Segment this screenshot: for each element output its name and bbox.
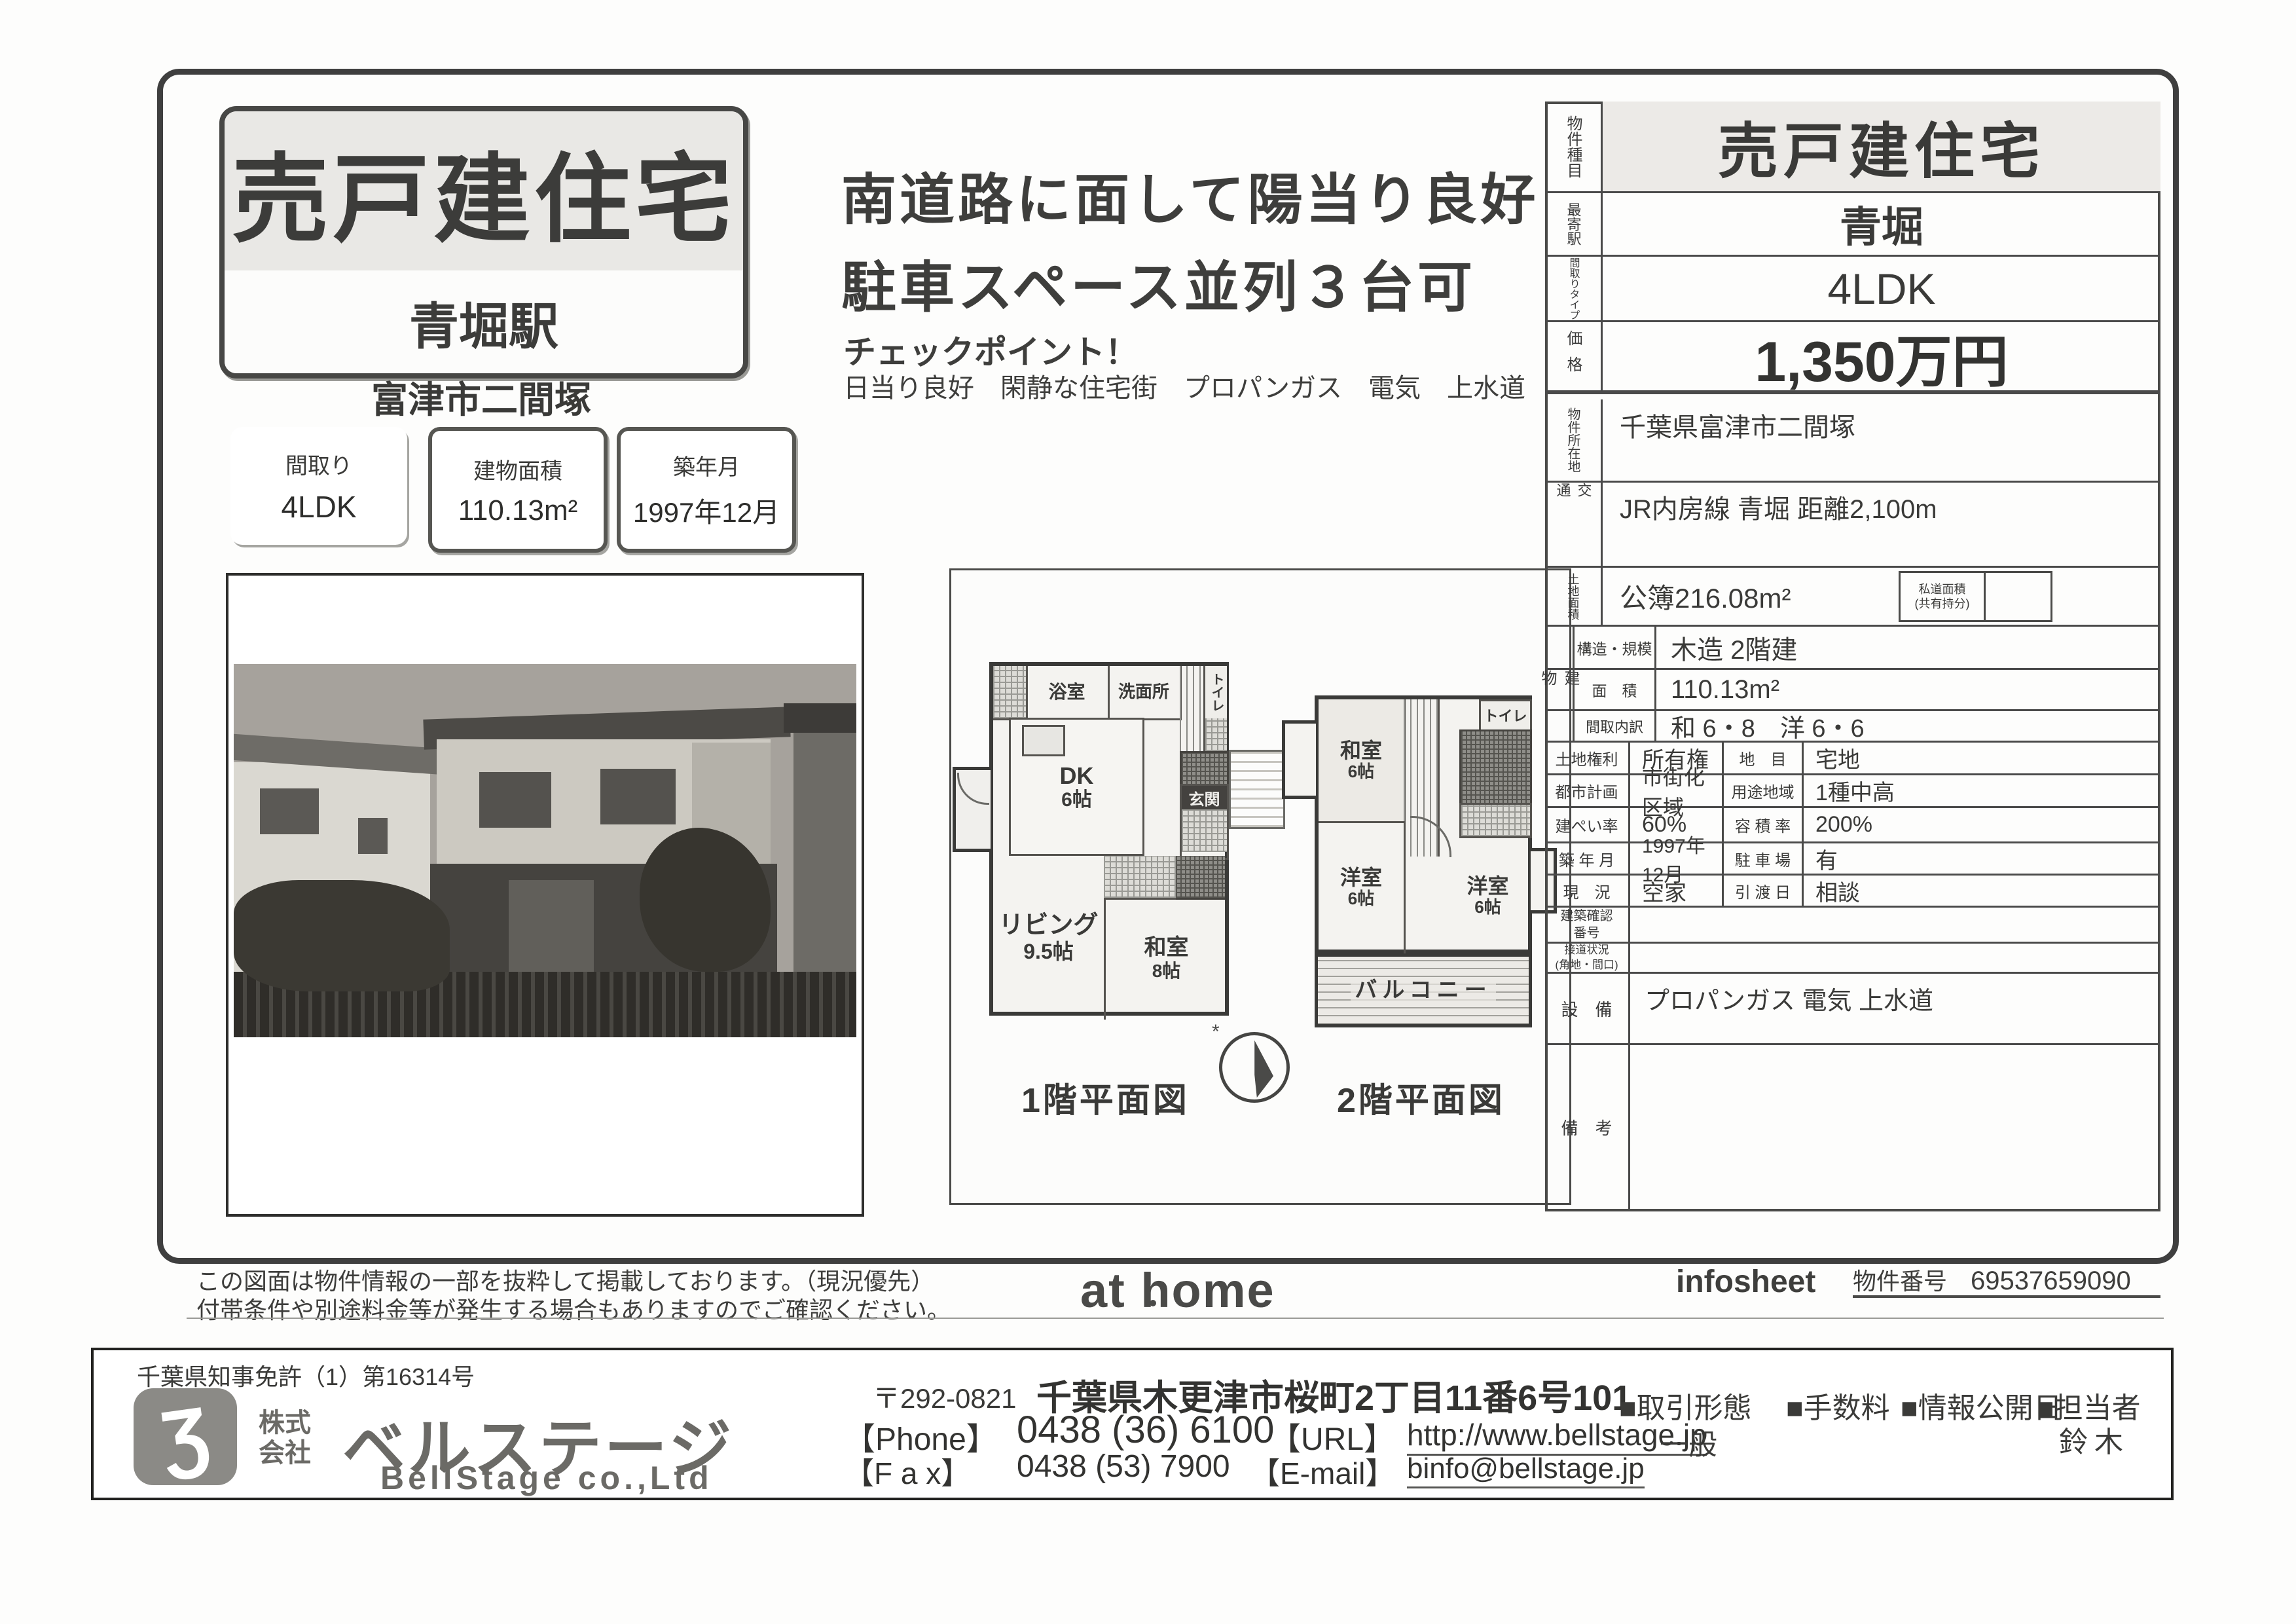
agent-value: 鈴木 bbox=[2059, 1418, 2130, 1460]
spec-box-built: 築年月 1997年12月 bbox=[617, 427, 796, 553]
pair3-l2: 駐 車 場 bbox=[1735, 847, 1791, 870]
pair1-l1: 都市計画 bbox=[1556, 779, 1618, 802]
company-box: 千葉県知事免許（1）第16314号 Ʒ 株式 会社 ベルステージ BellSta… bbox=[91, 1348, 2174, 1500]
athome-logo-dot bbox=[1150, 1300, 1156, 1306]
company-email-label: 【E-mail】 bbox=[1250, 1450, 1395, 1493]
row-property-type-value: 売戸建住宅 bbox=[1603, 103, 2160, 190]
f2-closet bbox=[1459, 803, 1532, 838]
row-setsudo: 接道状況 (角地・間口) bbox=[1545, 944, 2160, 974]
f2-washitsu-label: 和室 bbox=[1340, 739, 1382, 763]
station-name: 青堀駅 bbox=[409, 286, 558, 358]
f1-genkan-label: 玄関 bbox=[1189, 786, 1220, 809]
pair4-l2: 引 渡 日 bbox=[1735, 879, 1791, 902]
row-price-label: 価格 bbox=[1561, 330, 1584, 382]
row-land: 土地面積 公簿216.08m² 私道面積 (共有持分) bbox=[1545, 568, 2160, 627]
f2-yoshitsu-left-size: 6帖 bbox=[1348, 889, 1374, 909]
row-station: 最寄駅 青堀 bbox=[1545, 193, 2160, 257]
pair1-l2: 用途地域 bbox=[1732, 779, 1795, 802]
row-building-structure-label: 構造・規模 bbox=[1577, 637, 1652, 659]
floorplan-1f: 浴室 洗面所 トイレ 玄関 DK 6帖 リビング 9.5帖 和室 bbox=[989, 662, 1229, 1016]
row-facilities: 設 備 プロパンガス 電気 上水道 bbox=[1545, 974, 2160, 1045]
row-property-type-label: 物件種目 bbox=[1561, 115, 1584, 178]
f2-left-bay bbox=[1282, 720, 1316, 799]
f1-toilet-label: トイレ bbox=[1209, 673, 1224, 712]
f1-bath: 浴室 bbox=[1026, 666, 1110, 720]
compass-icon: * bbox=[1219, 1032, 1290, 1103]
f1-oshiire bbox=[1104, 856, 1176, 900]
pair1-v2: 1種中高 bbox=[1804, 775, 1895, 807]
catch-line-1: 南道路に面して陽当り良好 bbox=[841, 156, 1539, 235]
company-fax: 0438 (53) 7900 bbox=[1017, 1449, 1230, 1485]
row-building-structure-value: 木造 2階建 bbox=[1656, 629, 1797, 667]
row-layout-type-label: 間取りタイプ bbox=[1565, 257, 1581, 320]
row-pair-status: 現 況 空家 引 渡 日 相談 bbox=[1545, 876, 2160, 908]
disclaimer-line-2: 付帯条件や別途料金等が発生する場合もありますのでご確認ください。 bbox=[196, 1291, 951, 1325]
f2-yoshitsu-right-label: 洋室 bbox=[1467, 874, 1508, 898]
photo-main-window-2 bbox=[600, 769, 676, 824]
private-road-label: 私道面積 (共有持分) bbox=[1915, 582, 1970, 612]
f1-wash: 洗面所 bbox=[1108, 666, 1182, 720]
f1-living-label: リビング bbox=[998, 912, 1098, 940]
deal-type-value: 一般 bbox=[1660, 1421, 1717, 1463]
pair0-l1: 土地権利 bbox=[1556, 747, 1618, 769]
company-fax-label: 【F a x】 bbox=[844, 1450, 971, 1493]
row-pair-cityplan: 都市計画 市街化区域 用途地域 1種中高 bbox=[1545, 775, 2160, 808]
f1-washitsu-size: 8帖 bbox=[1152, 961, 1181, 982]
company-name-prefix: 株式 会社 bbox=[259, 1408, 311, 1468]
pair0-l2: 地 目 bbox=[1740, 747, 1787, 769]
f1-living: リビング 9.5帖 bbox=[993, 856, 1106, 1020]
f1-washitsu-label: 和室 bbox=[1144, 935, 1189, 961]
spec-box-built-label: 築年月 bbox=[673, 449, 740, 481]
pair4-l1: 現 況 bbox=[1563, 879, 1611, 902]
f1-wash-label: 洗面所 bbox=[1118, 682, 1169, 702]
pair3-l1: 築 年 月 bbox=[1559, 847, 1614, 870]
f2-yoshitsu-right: 洋室 6帖 bbox=[1440, 838, 1536, 953]
row-kakunin: 建築確認 番号 bbox=[1545, 908, 2160, 944]
row-layout-type: 間取りタイプ 4LDK bbox=[1545, 257, 2160, 322]
row-station-label: 最寄駅 bbox=[1563, 202, 1584, 246]
row-property-type: 物件種目 売戸建住宅 bbox=[1545, 101, 2160, 193]
f2-caption: 2階平面図 bbox=[1337, 1073, 1505, 1122]
infosheet-label: infosheet bbox=[1676, 1264, 1815, 1300]
company-email: binfo@bellstage.jp bbox=[1407, 1452, 1645, 1488]
title-box: 売戸建住宅 青堀駅 bbox=[219, 106, 748, 378]
title-box-gray: 売戸建住宅 bbox=[225, 111, 743, 270]
row-kakunin-label: 建築確認 番号 bbox=[1561, 908, 1613, 942]
f1-washitsu: 和室 8帖 bbox=[1104, 898, 1227, 1020]
pair2-v2: 200% bbox=[1804, 812, 1872, 838]
footer-divider-line bbox=[187, 1318, 2164, 1319]
row-access-value: JR内房線 青堀 距離2,100m bbox=[1603, 483, 1937, 526]
property-number-value: 69537659090 bbox=[1971, 1266, 2131, 1295]
f2-toilet-label: トイレ bbox=[1484, 708, 1527, 724]
row-address-value: 千葉県富津市二間塚 bbox=[1603, 399, 1855, 444]
flyer-page: 売戸建住宅 青堀駅 富津市二間塚 間取り 4LDK 建物面積 110.13m² … bbox=[0, 0, 2296, 1624]
row-building-layout-value: 和 6・8 洋 6・6 bbox=[1656, 708, 1865, 744]
athome-logo: at home bbox=[1080, 1263, 1275, 1318]
company-name-en: BellStage co.,Ltd bbox=[380, 1459, 713, 1497]
row-facilities-value: プロパンガス 電気 上水道 bbox=[1630, 974, 1933, 1016]
f1-stair-under bbox=[1176, 856, 1225, 900]
company-logo-mark: Ʒ bbox=[134, 1388, 237, 1485]
pair4-v1: 空家 bbox=[1630, 875, 1686, 907]
compass-north-mark: * bbox=[1212, 1021, 1220, 1043]
deal-type-label: ■取引形態 bbox=[1619, 1384, 1752, 1426]
row-access: 交通 JR内房線 青堀 距離2,100m bbox=[1545, 483, 2160, 568]
property-photo bbox=[226, 573, 864, 1217]
row-land-label: 土地面積 bbox=[1565, 573, 1582, 620]
f2-balcony: バルコニー bbox=[1315, 953, 1532, 1027]
photo-main-window-1 bbox=[479, 772, 551, 828]
spec-box-madori-label: 間取り bbox=[285, 448, 352, 480]
row-building-area-value: 110.13m² bbox=[1656, 675, 1779, 705]
location-text: 富津市二間塚 bbox=[223, 377, 740, 416]
row-setsudo-label: 接道状況 (角地・間口) bbox=[1555, 943, 1618, 972]
catch-line-2: 駐車スペース並列３台可 bbox=[841, 244, 1476, 323]
row-access-label: 交通 bbox=[1552, 483, 1594, 566]
f2-yoshitsu-left: 洋室 6帖 bbox=[1319, 821, 1406, 953]
pair2-l2: 容 積 率 bbox=[1735, 813, 1791, 836]
f1-dk-size: 6帖 bbox=[1061, 789, 1092, 812]
pair2-l1: 建ぺい率 bbox=[1556, 813, 1618, 836]
row-layout-type-value: 4LDK bbox=[1603, 264, 2160, 314]
f1-genkan: 玄関 bbox=[1180, 784, 1229, 860]
pair3-v2: 有 bbox=[1804, 843, 1838, 875]
spec-box-area-label: 建物面積 bbox=[473, 453, 562, 485]
row-building-area: 建物 面 積 110.13m² bbox=[1545, 670, 2160, 711]
row-address: 物件所在地 千葉県富津市二間塚 bbox=[1545, 399, 2160, 483]
company-postal: 〒292-0821 bbox=[873, 1376, 1017, 1416]
spec-box-madori: 間取り 4LDK bbox=[230, 427, 407, 545]
photo-shrubs bbox=[234, 880, 450, 991]
f1-closet bbox=[993, 666, 1028, 720]
photo-left-window-2 bbox=[358, 818, 388, 854]
row-facilities-label: 設 備 bbox=[1561, 997, 1612, 1021]
photo-right-roof bbox=[784, 703, 856, 733]
row-remarks: 備 考 bbox=[1545, 1045, 2160, 1209]
f2-washitsu-size: 6帖 bbox=[1348, 762, 1374, 782]
f2-balcony-label: バルコニー bbox=[1351, 978, 1495, 1003]
pair0-v2: 宅地 bbox=[1804, 742, 1860, 774]
row-price-value: 1,350万円 bbox=[1603, 316, 2160, 397]
f2-toilet: トイレ bbox=[1479, 699, 1532, 733]
f1-caption: 1階平面図 bbox=[1021, 1073, 1190, 1122]
row-building-structure: 構造・規模 木造 2階建 bbox=[1545, 627, 2160, 670]
spec-box-area: 建物面積 110.13m² bbox=[428, 427, 608, 553]
spec-box-area-value: 110.13m² bbox=[458, 494, 578, 527]
company-license: 千葉県知事免許（1）第16314号 bbox=[137, 1358, 475, 1392]
checkpoint-items: 日当り良好 閑静な住宅街 プロパンガス 電気 上水道 bbox=[843, 367, 1525, 405]
f2-washitsu: 和室 6帖 bbox=[1319, 699, 1406, 823]
row-building-layout-label: 間取内訳 bbox=[1586, 716, 1643, 737]
floorplan-2f: 和室 6帖 トイレ 洋室 6帖 洋室 6帖 bbox=[1315, 695, 1532, 953]
pair4-v2: 相談 bbox=[1804, 875, 1860, 907]
property-number-label: 物件番号 bbox=[1853, 1268, 1947, 1295]
f1-bath-label: 浴室 bbox=[1048, 682, 1085, 703]
f2-stairwell bbox=[1459, 729, 1532, 807]
f1-kitchen-unit bbox=[1022, 725, 1065, 756]
row-pair-built: 築 年 月 1997年12月 駐 車 場 有 bbox=[1545, 843, 2160, 876]
property-number-group: 物件番号69537659090 bbox=[1853, 1263, 2160, 1298]
row-building-layout: 間取内訳 和 6・8 洋 6・6 bbox=[1545, 711, 2160, 743]
f1-stairs bbox=[1180, 751, 1229, 788]
spec-box-madori-value: 4LDK bbox=[281, 489, 356, 525]
f1-entry-tile bbox=[1203, 718, 1227, 751]
fee-label: ■手数料 bbox=[1786, 1384, 1890, 1426]
f1-dk-label: DK bbox=[1060, 762, 1094, 789]
row-station-value: 青堀 bbox=[1603, 194, 2160, 254]
f1-toilet: トイレ bbox=[1203, 666, 1227, 720]
spec-box-built-value: 1997年12月 bbox=[633, 490, 780, 530]
f1-living-size: 9.5帖 bbox=[1023, 940, 1074, 964]
compass-needle bbox=[1226, 1038, 1285, 1099]
row-address-label: 物件所在地 bbox=[1563, 407, 1582, 473]
company-phone: 0438 (36) 6100 bbox=[1017, 1408, 1274, 1452]
photo-image bbox=[234, 664, 856, 1037]
f2-yoshitsu-left-label: 洋室 bbox=[1340, 866, 1382, 890]
row-building-area-label: 面 積 bbox=[1592, 678, 1637, 701]
row-land-value: 公簿216.08m² bbox=[1603, 576, 1791, 616]
sale-title: 売戸建住宅 bbox=[232, 120, 736, 261]
f1-approach-steps bbox=[1229, 750, 1285, 829]
photo-left-window bbox=[260, 788, 319, 834]
row-remarks-label: 備 考 bbox=[1561, 1115, 1612, 1139]
f2-yoshitsu-right-size: 6帖 bbox=[1474, 898, 1501, 917]
row-price: 価格 1,350万円 bbox=[1545, 322, 2160, 394]
private-road-box: 私道面積 (共有持分) bbox=[1899, 571, 2052, 622]
title-box-station-area: 青堀駅 bbox=[225, 270, 743, 373]
